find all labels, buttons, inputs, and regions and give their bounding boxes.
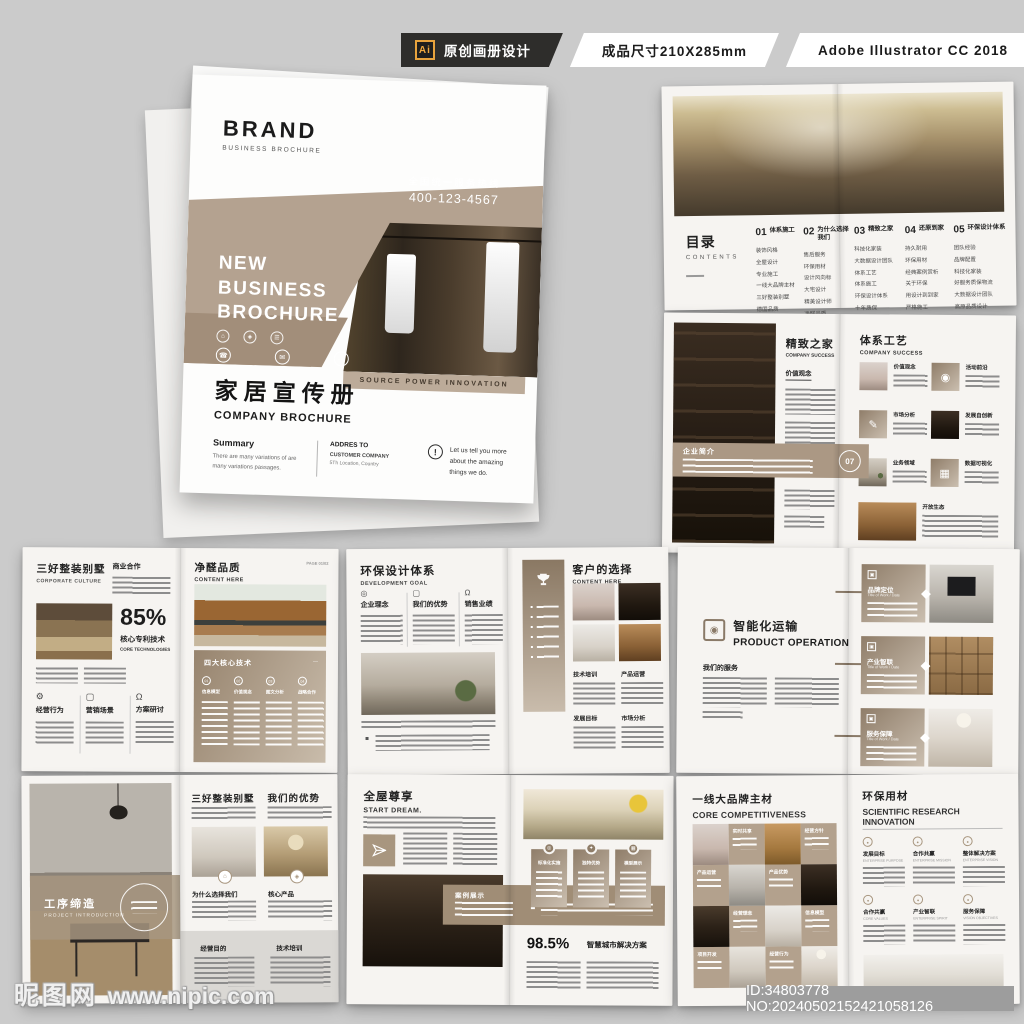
choice-item: 发展目标: [573, 713, 615, 750]
choice-title: 客户的选择 CONTENT HERE: [572, 561, 632, 585]
choice-label: 发展目标: [573, 713, 615, 722]
eco-title: 环保设计体系 DEVELOPMENT GOAL: [360, 563, 435, 588]
text-lines: [363, 816, 495, 829]
star-icon: ✦: [585, 842, 597, 854]
text-lines: [192, 901, 256, 921]
text-lines: [86, 722, 124, 746]
toc-item: 售后服务: [804, 250, 854, 263]
bullseye-icon: ●: [913, 894, 923, 904]
diamond-icon: ◈: [243, 330, 256, 343]
eco-material-title-en2: INNOVATION: [862, 816, 959, 827]
dream-card: ◎ 标准化实施: [531, 849, 567, 907]
text-lines: [586, 961, 658, 989]
grid-item: 数据可视化: [965, 459, 999, 485]
label-cell: 经营行为: [765, 946, 801, 987]
list-dots: [531, 606, 533, 662]
text-lines: [893, 470, 927, 484]
eco-title-cn: 环保设计体系: [360, 563, 435, 580]
intro-band: 工序缔造 PROJECT INTRODUCTION: [30, 875, 180, 940]
eco-material-title-cn: 环保用材: [862, 788, 959, 804]
text-lines: [769, 878, 793, 890]
villa-col: Ω方案研讨: [136, 692, 174, 745]
divider: [459, 592, 460, 646]
connector-line: [835, 591, 861, 593]
photo-bedroom: [572, 583, 614, 620]
text-lines: [361, 720, 495, 730]
toc-title-cn: 目录: [685, 231, 738, 252]
choice-label: 产品运营: [621, 669, 663, 678]
card-sub: Title of Work / Date: [866, 737, 898, 741]
divider: [130, 696, 131, 754]
toc-item: 持久耐用: [905, 243, 953, 255]
spread-company-success: 精致之家 COMPANY SUCCESS 价值观念 企业简介 07 体系工艺 C…: [662, 312, 1016, 555]
eco-item-en: VISION OBJECTIVES: [963, 916, 1005, 920]
intro-bottom-label: 技术培训: [276, 942, 302, 952]
text-lines: [963, 924, 1005, 944]
success-right-title: 体系工艺 COMPANY SUCCESS: [860, 332, 923, 357]
toc-items: 团队经验品牌配置科技化家装好服务质保物流大数据设计团队高原品质设计: [954, 243, 1007, 315]
spread-fold: [173, 548, 186, 772]
photo-tile-wide: [858, 502, 916, 541]
toc-section-num: 01: [755, 227, 766, 238]
grid-label: 开放生态: [922, 503, 998, 512]
toc-section-num: 03: [854, 226, 865, 237]
photo-living-bright: [523, 789, 663, 840]
text-lines: [136, 721, 174, 745]
eco-item-cn: 发展目标: [863, 850, 905, 858]
tagline-text: SOURCE POWER INNOVATION: [359, 377, 508, 389]
text-lines: [863, 925, 905, 945]
text-lines: [913, 924, 955, 944]
toc-section-num: 05: [953, 224, 964, 235]
choice-band: [522, 560, 565, 712]
choice-item: 技术培训: [573, 669, 615, 706]
label-cell: 产品运营: [693, 865, 729, 906]
operation-card: ▣ 产业智联 Title of Work / Date: [861, 636, 925, 694]
trophy-icon: [535, 572, 551, 588]
gear-icon: ⚙: [36, 691, 74, 702]
brand-name: BRAND: [223, 116, 323, 145]
text-lines: [621, 682, 663, 706]
text-lines: [270, 956, 330, 986]
toc-items: 装饰风格全屋设计专业施工一线大品牌主材三好整装别墅德国品质: [756, 246, 804, 318]
grid-item: 活动前沿: [965, 363, 999, 389]
ribbon-original-label: 原创画册设计: [444, 40, 531, 60]
text-lines: [893, 374, 927, 388]
text-lines: [526, 961, 580, 989]
toc-item: 精美设计师: [804, 297, 854, 310]
toc-item: 高原品质设计: [954, 302, 1006, 315]
chat-icon: ⋯: [334, 351, 349, 366]
quality-title: 净醛品质 CONTENT HERE: [194, 560, 244, 583]
toc-item: 设计风向标: [804, 273, 854, 286]
villa-sub: 商业合作: [112, 562, 170, 572]
eco-item-cn: 整体解决方案: [963, 849, 1005, 857]
panel-dash: —: [313, 659, 318, 665]
panel-item-num: 03: [266, 676, 275, 685]
text-lines: [268, 806, 332, 820]
label-cell: 经营方针: [801, 823, 837, 864]
photo-bathroom: [673, 92, 1005, 217]
text-lines: [965, 423, 999, 437]
panel-item: 04战略合作: [298, 677, 324, 746]
tile-label: 产品优势: [769, 868, 797, 875]
text-lines: [769, 960, 793, 972]
panel-item-num: 02: [234, 676, 243, 685]
eco-item: ●产业智联ENTERPRISE SPIRIT: [913, 894, 955, 944]
grid-item: 价值观念: [893, 362, 927, 388]
toc-section-title: 环保设计体系: [968, 224, 1006, 232]
text-lines: [922, 515, 998, 540]
photo-kitchen: [194, 584, 326, 647]
text-lines: [683, 459, 813, 474]
text-lines: [537, 606, 559, 662]
menu-icon: ☰: [270, 331, 283, 344]
bullseye-icon: ●: [913, 836, 923, 846]
toc-title-en: CONTENTS: [686, 254, 739, 261]
eco-item: ●合作共赢ENTERPRISE MISSION: [913, 836, 955, 886]
address-title: ADDRES TO: [330, 441, 416, 451]
toc-items: 持久耐用环保用材经典案例赏析关于环保用设计到到家严格施工: [905, 243, 954, 315]
ribbon-software-label: Adobe Illustrator CC 2018: [818, 43, 1008, 58]
text-lines: [866, 746, 916, 762]
percent-cn: 核心专利技术: [120, 634, 170, 645]
eco-col-label: 我们的优势: [413, 599, 455, 609]
text-lines: [697, 961, 721, 973]
toc-item: 环保设计体系: [855, 291, 905, 304]
note-block: ! Let us tell you more about the amazing…: [427, 444, 519, 480]
intro-bottom-label: 经营目的: [200, 943, 226, 953]
photo-bookshelf: [672, 323, 776, 544]
core-checkerboard: 实时共享 经营方针 产品运营 产品优势 经营理念 信息模型 项目开发 经营行为: [693, 823, 838, 988]
tile-label: 经营方针: [805, 827, 833, 834]
label-cell: 项目开发: [693, 947, 729, 988]
core-title-cn: 一线大品牌主材: [692, 791, 806, 807]
toc-item: 关于环保: [905, 279, 953, 291]
cover-mockup-zone: BRAND BUSINESS BROCHURE 全国统一服务热线 400-123…: [148, 64, 580, 542]
hotline-block: 全国统一服务热线 400-123-4567: [379, 172, 530, 208]
case-band-label: 案例展示: [455, 890, 485, 900]
panel-title: 四大核心技术: [204, 658, 252, 668]
pendant-cord: [117, 783, 118, 807]
table-leg: [135, 942, 137, 976]
toc-item: 大数据设计团队: [954, 290, 1006, 303]
quality-title-cn: 净醛品质: [194, 560, 243, 575]
toc-item: 全屋设计: [756, 257, 803, 269]
panel-item-num: 01: [202, 676, 211, 685]
spread-fold: [841, 775, 855, 1005]
badge-icon: ▣: [867, 714, 876, 723]
connector-line: [835, 663, 861, 665]
divider: [80, 695, 81, 753]
toc-section-header: 04还原到家: [905, 224, 953, 236]
grid-item: 业务领域: [893, 458, 927, 484]
toc-item: 体系施工: [855, 280, 905, 293]
eco-material-title: 环保用材 SCIENTIFIC RESEARCH INNOVATION: [862, 788, 960, 827]
success-left-text-lower: [784, 490, 834, 528]
panel-item-label: 信息模型: [202, 689, 228, 695]
toc-section-title: 体系施工: [770, 227, 795, 235]
hotline-label: 全国统一服务热线: [379, 172, 529, 191]
adobe-illustrator-icon: Ai: [415, 40, 435, 60]
eco-col: ▢我们的优势: [412, 588, 454, 644]
tile-label: 信息模型: [805, 909, 833, 916]
text-lines: [202, 701, 228, 745]
band-number-badge: 07: [839, 450, 861, 472]
monitor-icon: ▢: [412, 588, 454, 597]
toc-item: 一线大品牌主材: [756, 281, 803, 293]
toc-title-block: 目录 CONTENTS: [685, 231, 739, 277]
text-lines: [963, 866, 1005, 886]
market-analysis-icon: ✎: [859, 410, 887, 438]
label-cell: 产品优势: [765, 864, 801, 905]
text-lines: [573, 682, 615, 706]
site-watermark: 昵图网 www.nipic.com: [14, 976, 275, 1012]
text-lines: [620, 872, 646, 900]
dream-percent: 98.5%: [527, 935, 570, 952]
photo-cell: [693, 906, 729, 947]
choice-label: 技术培训: [573, 669, 615, 678]
photo-cell: [765, 905, 801, 946]
dream-card-label: 独特优势: [573, 860, 609, 866]
home-icon: ⌂: [216, 329, 229, 342]
villa-col-label: 营销场景: [86, 706, 124, 716]
toc-item: 环保用材: [804, 261, 854, 274]
toc-dash: [686, 275, 704, 277]
quality-title-en: CONTENT HERE: [194, 577, 243, 583]
divider: [407, 593, 408, 647]
photo-kitchen-warm: [619, 624, 661, 661]
eco-item-cn: 合作共赢: [863, 908, 905, 916]
summary-title: Summary: [213, 437, 305, 450]
toc-section-header: 02为什么选择我们: [803, 226, 853, 242]
summary-text: There are many variations of are many va…: [212, 451, 305, 475]
panel-item: 03图文分析: [266, 676, 292, 745]
headline-line: BUSINESS: [218, 276, 340, 305]
eco-col: Ω销售业绩: [464, 588, 502, 644]
divider: [316, 441, 318, 477]
eco-item-en: ENTERPRISE PURPOSE: [863, 859, 905, 863]
text-lines: [697, 879, 721, 891]
success-left-title-en: COMPANY SUCCESS: [786, 354, 836, 359]
grid-label: 价值观念: [894, 362, 928, 370]
toc-section-header: 03精致之家: [854, 225, 904, 237]
photo-tile: [931, 411, 959, 439]
toc-item: 装饰风格: [756, 246, 803, 258]
ribbon-size-label: 成品尺寸210X285mm: [602, 40, 747, 60]
text-lines: [298, 702, 324, 746]
choice-item: 产品运营: [621, 669, 663, 706]
percent-block: 85% 核心专利技术 CORE TECHNOLOGIES: [120, 606, 171, 652]
text-lines: [703, 711, 743, 719]
text-lines: [784, 490, 834, 510]
headset-icon: Ω: [464, 588, 502, 597]
success-right-title-en: COMPANY SUCCESS: [860, 350, 923, 357]
toc-section: 03精致之家 科技化家装大数据设计团队体系工艺体系施工环保设计体系十年质保: [854, 225, 905, 320]
dream-card-label: 模型展示: [615, 861, 651, 867]
photo-lounge-dark: [618, 583, 660, 620]
photo-cell: [801, 946, 837, 987]
eco-col-label: 销售业绩: [465, 599, 503, 609]
eco-col: ◎企业理念: [360, 589, 402, 645]
shirt-shape: [384, 254, 416, 334]
eco-material-title-en1: SCIENTIFIC RESEARCH: [862, 806, 959, 817]
grid-item: 市场分析: [893, 410, 927, 436]
intro-band-cn: 工序缔造: [44, 895, 96, 911]
data-visual-icon: ▦: [931, 459, 959, 487]
text-lines: [893, 422, 927, 436]
divider: [863, 828, 1003, 830]
eco-item: ●发展目标ENTERPRISE PURPOSE: [863, 837, 905, 887]
toc-item: 团队经验: [954, 243, 1006, 256]
text-lines: [536, 871, 562, 899]
dream-title-en: START DREAM.: [363, 807, 421, 814]
toc-item: 大数据设计团队: [854, 256, 904, 269]
photo-hallway: [361, 652, 495, 715]
panel-item-label: 图文分析: [266, 689, 292, 695]
villa-col-label: 经营行为: [36, 705, 74, 715]
summary-block: Summary There are many variations of are…: [212, 437, 305, 475]
grid-label: 发展自创新: [965, 411, 999, 419]
core-title: 一线大品牌主材 CORE COMPETITIVENESS: [692, 791, 806, 820]
eco-title-en: DEVELOPMENT GOAL: [360, 581, 435, 588]
panel-item: 02价值观念: [234, 676, 260, 745]
photo-cell: [693, 824, 729, 865]
villa-title-cn: 三好整装别墅: [36, 561, 105, 576]
text-lines: [403, 832, 447, 866]
label-cell: 实时共享: [729, 824, 765, 865]
card-sub: Title of Work / Date: [867, 665, 899, 669]
toc-item: 科技化家装: [854, 244, 904, 257]
grid-icon: ▦: [627, 843, 639, 855]
toc-item: 品牌配置: [954, 254, 1006, 267]
text-lines: [784, 516, 824, 528]
watermark-site-cn: 昵图网: [14, 976, 98, 1012]
eco-item: ●整体解决方案ENTERPRISE VISION: [963, 836, 1005, 886]
text-lines: [413, 614, 455, 644]
dream-percent-label: 智慧城市解决方案: [587, 939, 647, 950]
toc-section-num: 02: [803, 226, 814, 237]
toc-section-title: 还原到家: [919, 225, 944, 233]
brand-block: BRAND BUSINESS BROCHURE: [222, 116, 322, 155]
ribbon-size: 成品尺寸210X285mm: [570, 33, 779, 67]
text-lines: [785, 389, 835, 415]
success-right-title-cn: 体系工艺: [860, 332, 923, 349]
monitor-icon: ▢: [86, 692, 124, 703]
toc-section: 02为什么选择我们 售后服务环保用材设计风向标大宅设计精美设计师净醛品质: [803, 226, 854, 321]
toc-section-title: 精致之家: [868, 225, 893, 233]
cover-mini-icons: ⌂ ◈ ☰: [216, 329, 283, 344]
photo-shelving: [929, 637, 993, 695]
target-icon: ◎: [360, 589, 402, 598]
dream-card: ▦ 模型展示: [615, 850, 651, 908]
success-left-title-cn: 精致之家: [786, 336, 836, 352]
quote-circle: [120, 883, 168, 931]
paper-plane-icon: [372, 843, 386, 857]
headset-icon: Ω: [136, 692, 174, 702]
exclamation-icon: !: [428, 444, 443, 459]
toc-item: 大宅设计: [804, 285, 854, 298]
shirt-shape: [483, 242, 520, 352]
brand-subtitle: BUSINESS BROCHURE: [222, 145, 321, 155]
label-cell: 信息模型: [801, 905, 837, 946]
villa-col: ⚙经营行为: [36, 691, 74, 745]
tv-screen: [947, 576, 975, 596]
text-lines: [268, 900, 332, 920]
eco-item-en: ENTERPRISE SPIRIT: [913, 916, 955, 920]
spread-project-introduction: 工序缔造 PROJECT INTRODUCTION 三好整装别墅 我们的优势 ⌂…: [21, 774, 338, 1004]
text-lines: [36, 721, 74, 745]
cover-headline: NEW BUSINESS BROCHURE: [217, 251, 341, 329]
core-tech-panel: 四大核心技术 — 01信息模型 02价值观念 03图文分析 04战略合作: [193, 650, 326, 763]
choice-title-cn: 客户的选择: [572, 561, 632, 577]
ribbon-software: Adobe Illustrator CC 2018: [786, 33, 1024, 67]
toc-item: 体系工艺: [855, 268, 905, 281]
percent-value: 85%: [120, 606, 170, 629]
watermark-site-url: www.nipic.com: [108, 983, 275, 1010]
grid-label: 业务领域: [893, 458, 927, 466]
header-ribbon: Ai 原创画册设计 成品尺寸210X285mm Adobe Illustrato…: [401, 33, 1024, 67]
photo-cell: [765, 823, 801, 864]
eco-item: ●服务保障VISION OBJECTIVES: [963, 894, 1005, 944]
choice-item: 市场分析: [621, 713, 663, 750]
intro-band-en: PROJECT INTRODUCTION: [44, 913, 124, 918]
villa-sub-block: 商业合作: [112, 562, 170, 595]
grid-label: 活动前沿: [966, 363, 1000, 371]
eco-item-cn: 服务保障: [963, 907, 1005, 915]
intro-right-title-1: 三好整装别墅: [191, 791, 254, 805]
photo-woodwork: [36, 603, 112, 659]
headline-line: NEW: [218, 251, 340, 280]
toc-sections: 01体系施工 装饰风格全屋设计专业施工一线大品牌主材三好整装别墅德国品质 02为…: [755, 224, 1006, 322]
toc-items: 科技化家装大数据设计团队体系工艺体系施工环保设计体系十年质保: [854, 244, 905, 316]
eco-item-cn: 产业智联: [913, 907, 955, 915]
villa-title-en: CORPORATE CULTURE: [36, 578, 105, 584]
tile-label: 经营理念: [733, 910, 761, 917]
address-company: CUSTOMER COMPANY: [330, 452, 416, 461]
toc-section-header: 05环保设计体系: [953, 224, 1005, 236]
text-lines: [234, 701, 260, 745]
text-lines: [863, 867, 905, 887]
text-lines: [453, 833, 497, 867]
toc-item: 专业施工: [756, 269, 803, 281]
grid-label: 市场分析: [893, 410, 927, 418]
dream-card: ✦ 独特优势: [573, 849, 609, 907]
table-leg: [76, 943, 78, 977]
dream-card-label: 标准化实施: [531, 860, 567, 866]
image-id-band: ID:34803778 NO:20240502152421058126: [746, 986, 1014, 1011]
address-block: ADDRES TO CUSTOMER COMPANY 5Th Location,…: [329, 441, 416, 469]
operation-title-cn: 智能化运输: [733, 617, 849, 635]
spread-core-competitiveness: 一线大品牌主材 CORE COMPETITIVENESS 实时共享 经营方针 产…: [676, 774, 1020, 1006]
photo-cell: [729, 865, 765, 906]
activity-icon: ◉: [931, 363, 959, 391]
tile-label: 经营行为: [769, 950, 797, 957]
percent-en: CORE TECHNOLOGIES: [120, 647, 170, 652]
card-sub: Title of Work / Date: [867, 593, 899, 597]
cover-footer: Summary There are many variations of are…: [212, 437, 519, 483]
eco-item: ●合作共赢CORE VALUES: [863, 895, 905, 945]
photo-tile: [859, 362, 887, 390]
spread-eco-design: 环保设计体系 DEVELOPMENT GOAL ◎企业理念 ▢我们的优势 Ω销售…: [346, 547, 670, 775]
note-text: Let us tell you more about the amazing t…: [449, 445, 519, 480]
toc-item: 严格施工: [906, 302, 954, 314]
page-label: PAGE 01/02: [306, 561, 328, 566]
eco-item-cn: 合作共赢: [913, 849, 955, 857]
spread-villa-quality: 三好整装别墅 CORPORATE CULTURE 商业合作 85% 核心专利技术…: [21, 547, 338, 773]
operation-title-en: PRODUCT OPERATION: [733, 637, 849, 649]
text-lines: [913, 866, 955, 886]
